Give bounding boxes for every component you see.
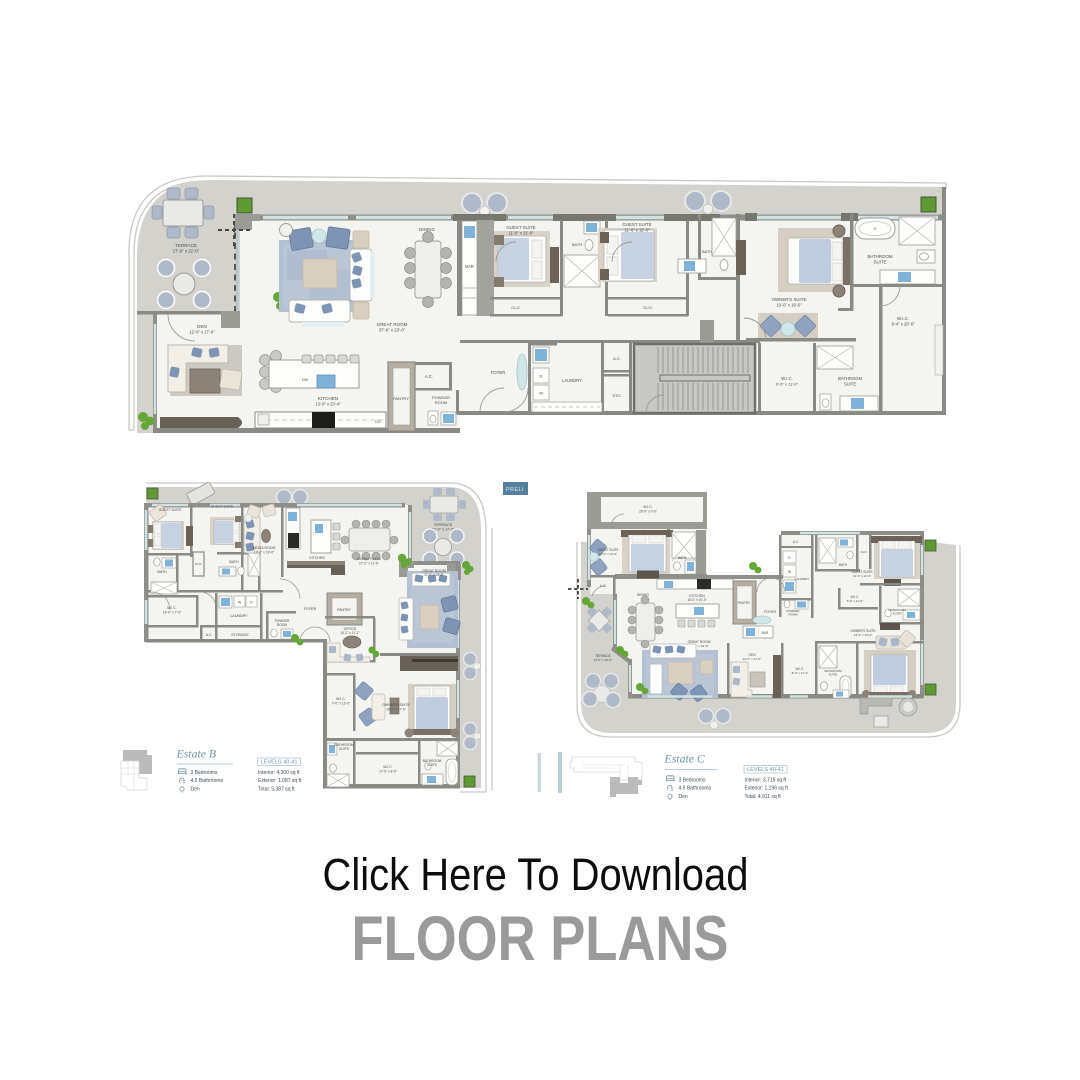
- svg-text:ROOM: ROOM: [789, 613, 799, 617]
- svg-text:17'-6" x 8'-6": 17'-6" x 8'-6": [379, 770, 397, 774]
- svg-text:D: D: [540, 374, 543, 379]
- svg-text:SUITE: SUITE: [874, 260, 887, 265]
- svg-text:12'-0" x 35'-6": 12'-0" x 35'-6": [594, 658, 612, 662]
- svg-text:W.I.C.: W.I.C.: [897, 316, 909, 321]
- svg-text:14'-0" x 13'-0": 14'-0" x 13'-0": [854, 633, 872, 637]
- svg-text:DINING ROOM: DINING ROOM: [357, 557, 381, 561]
- svg-text:22'-6" x 25'-2": 22'-6" x 25'-2": [424, 573, 444, 577]
- svg-text:TERRACE: TERRACE: [175, 243, 197, 248]
- svg-text:17'-2" x 11'-6": 17'-2" x 11'-6": [359, 562, 380, 566]
- svg-text:BATH: BATH: [702, 249, 712, 254]
- svg-text:DEN: DEN: [197, 324, 207, 329]
- svg-text:W.I.C.: W.I.C.: [383, 765, 393, 769]
- svg-text:7'-0" x 13'-0": 7'-0" x 13'-0": [332, 702, 351, 706]
- svg-text:Total: 4,911 sq ft: Total: 4,911 sq ft: [745, 794, 782, 800]
- svg-text:KITCHEN: KITCHEN: [318, 396, 338, 401]
- svg-text:W: W: [539, 391, 543, 396]
- svg-text:LAUNDRY: LAUNDRY: [562, 378, 582, 383]
- svg-text:BATH: BATH: [157, 570, 167, 574]
- svg-text:STORAGE: STORAGE: [231, 633, 249, 637]
- svg-text:26'-0" x 9'-6": 26'-0" x 9'-6": [639, 510, 657, 514]
- svg-text:BAR: BAR: [762, 631, 769, 635]
- svg-text:Den: Den: [191, 787, 200, 793]
- svg-text:A.C.: A.C.: [206, 633, 213, 637]
- svg-text:BATH: BATH: [839, 563, 848, 567]
- svg-text:STO.: STO.: [612, 393, 621, 398]
- svg-text:LEVELS 40-41: LEVELS 40-41: [747, 767, 784, 773]
- svg-text:PANTRY: PANTRY: [738, 601, 752, 605]
- svg-text:11'-6" x 12'-6": 11'-6" x 12'-6": [509, 231, 534, 236]
- svg-text:W.I.C.: W.I.C.: [643, 505, 653, 509]
- svg-text:Click Here To Download: Click Here To Download: [323, 849, 749, 900]
- svg-text:FOYER: FOYER: [491, 370, 505, 375]
- svg-text:3 Bedrooms: 3 Bedrooms: [679, 777, 706, 783]
- svg-text:DO: DO: [375, 420, 381, 424]
- svg-text:CLO.: CLO.: [860, 550, 867, 554]
- svg-text:GUEST SUITE: GUEST SUITE: [506, 225, 535, 230]
- svg-text:13'-0" x 23'-4": 13'-0" x 23'-4": [315, 402, 341, 407]
- svg-text:Interior: 4,300 sq ft: Interior: 4,300 sq ft: [258, 770, 300, 776]
- svg-text:A.C.: A.C.: [793, 540, 799, 544]
- svg-text:12'-0" x 12'-0": 12'-0" x 12'-0": [599, 552, 617, 556]
- svg-text:SUITE: SUITE: [893, 612, 902, 616]
- svg-text:A.C.: A.C.: [425, 374, 433, 379]
- svg-text:BATH: BATH: [572, 242, 582, 247]
- svg-text:8'-0" x 17'-0": 8'-0" x 17'-0": [792, 671, 809, 675]
- svg-text:Exterior: 1,087 sq ft: Exterior: 1,087 sq ft: [258, 778, 302, 784]
- svg-text:SUITE: SUITE: [829, 673, 838, 677]
- svg-text:BATH: BATH: [229, 560, 239, 564]
- svg-text:Exterior: 1,196 sq ft: Exterior: 1,196 sq ft: [745, 786, 789, 792]
- svg-text:5'-6" x 11'-6": 5'-6" x 11'-6": [847, 599, 864, 603]
- svg-text:W.I.C.: W.I.C.: [336, 697, 346, 701]
- svg-text:13'-2" x 11'-2": 13'-2" x 11'-2": [340, 631, 359, 635]
- svg-text:3 Bedrooms: 3 Bedrooms: [191, 770, 218, 776]
- svg-text:20'-0" x 17'-0": 20'-0" x 17'-0": [386, 708, 406, 712]
- svg-text:CLO.: CLO.: [643, 305, 652, 310]
- svg-text:A.C.: A.C.: [613, 356, 621, 361]
- svg-text:KITCHEN: KITCHEN: [309, 556, 325, 560]
- svg-text:SUITE: SUITE: [427, 763, 438, 767]
- svg-text:12'-0" x 11'-0": 12'-0" x 11'-0": [853, 574, 871, 578]
- svg-text:CLO.: CLO.: [195, 562, 202, 566]
- svg-text:TERRACE: TERRACE: [434, 522, 453, 527]
- svg-text:12'-0" x 17'-0": 12'-0" x 17'-0": [743, 657, 761, 661]
- svg-text:4.5 Bathrooms: 4.5 Bathrooms: [679, 786, 712, 792]
- svg-text:BAR: BAR: [465, 264, 474, 269]
- svg-text:GUEST SUITE: GUEST SUITE: [211, 505, 234, 509]
- svg-text:BATHROOM: BATHROOM: [867, 254, 892, 259]
- svg-text:W.I.C.: W.I.C.: [167, 606, 177, 610]
- svg-text:PRELI: PRELI: [506, 487, 524, 493]
- svg-text:37'-6" x 23'-0": 37'-6" x 23'-0": [379, 328, 406, 333]
- svg-text:18'-0" x 10'-0": 18'-0" x 10'-0": [687, 598, 707, 602]
- svg-text:OWNER'S SUITE: OWNER'S SUITE: [382, 703, 410, 707]
- svg-text:4.5 Bathrooms: 4.5 Bathrooms: [191, 778, 224, 784]
- svg-text:MEDIA ROOM: MEDIA ROOM: [253, 546, 276, 550]
- svg-text:9'-4" x 28'-6": 9'-4" x 28'-6": [892, 322, 915, 327]
- svg-text:Total: 5,387 sq ft: Total: 5,387 sq ft: [258, 787, 295, 793]
- svg-text:FOYER: FOYER: [764, 610, 777, 614]
- svg-text:19'-0" x 19'-6": 19'-0" x 19'-6": [776, 303, 802, 308]
- svg-text:GUEST SUITE: GUEST SUITE: [159, 508, 182, 512]
- svg-text:LAUNDRY: LAUNDRY: [795, 577, 810, 581]
- svg-text:SUITE: SUITE: [844, 382, 857, 387]
- svg-text:12'-0" x 17'-6": 12'-0" x 17'-6": [189, 330, 215, 335]
- svg-text:Interior: 3,715 sq ft: Interior: 3,715 sq ft: [745, 777, 787, 783]
- svg-text:9'-6" x 11'-0": 9'-6" x 11'-0": [776, 382, 799, 387]
- svg-text:OWNER'S SUITE: OWNER'S SUITE: [772, 297, 807, 302]
- svg-text:GREAT ROOM: GREAT ROOM: [377, 322, 408, 327]
- svg-text:BATHROOM: BATHROOM: [838, 376, 862, 381]
- svg-text:LAUNDRY: LAUNDRY: [230, 614, 248, 618]
- svg-text:Estate C: Estate C: [664, 752, 705, 766]
- svg-text:PANTRY: PANTRY: [393, 396, 409, 401]
- svg-text:SUITE: SUITE: [339, 747, 350, 751]
- svg-text:BATH: BATH: [678, 556, 687, 560]
- svg-text:GUEST SUITE: GUEST SUITE: [622, 222, 651, 227]
- svg-text:Estate B: Estate B: [176, 747, 217, 761]
- svg-text:FOYER: FOYER: [304, 607, 317, 611]
- svg-text:W.I.C.: W.I.C.: [781, 376, 792, 381]
- svg-text:Den: Den: [679, 794, 688, 800]
- svg-text:12'-2" x 19'-0": 12'-2" x 19'-0": [254, 551, 275, 555]
- svg-text:PANTRY: PANTRY: [337, 608, 352, 612]
- svg-text:11'-6" x 12'-6": 11'-6" x 12'-6": [625, 228, 650, 233]
- svg-text:ROOM: ROOM: [277, 623, 288, 627]
- svg-text:14'-0" x 7'-0": 14'-0" x 7'-0": [163, 611, 182, 615]
- svg-text:FLOOR PLANS: FLOOR PLANS: [352, 904, 729, 974]
- svg-text:CLO.: CLO.: [511, 305, 520, 310]
- svg-text:LEVELS 40-41: LEVELS 40-41: [261, 760, 298, 766]
- svg-text:17'-0" x 22'-0": 17'-0" x 22'-0": [173, 249, 200, 254]
- svg-text:ROOM: ROOM: [435, 400, 447, 405]
- svg-text:DW: DW: [302, 378, 309, 382]
